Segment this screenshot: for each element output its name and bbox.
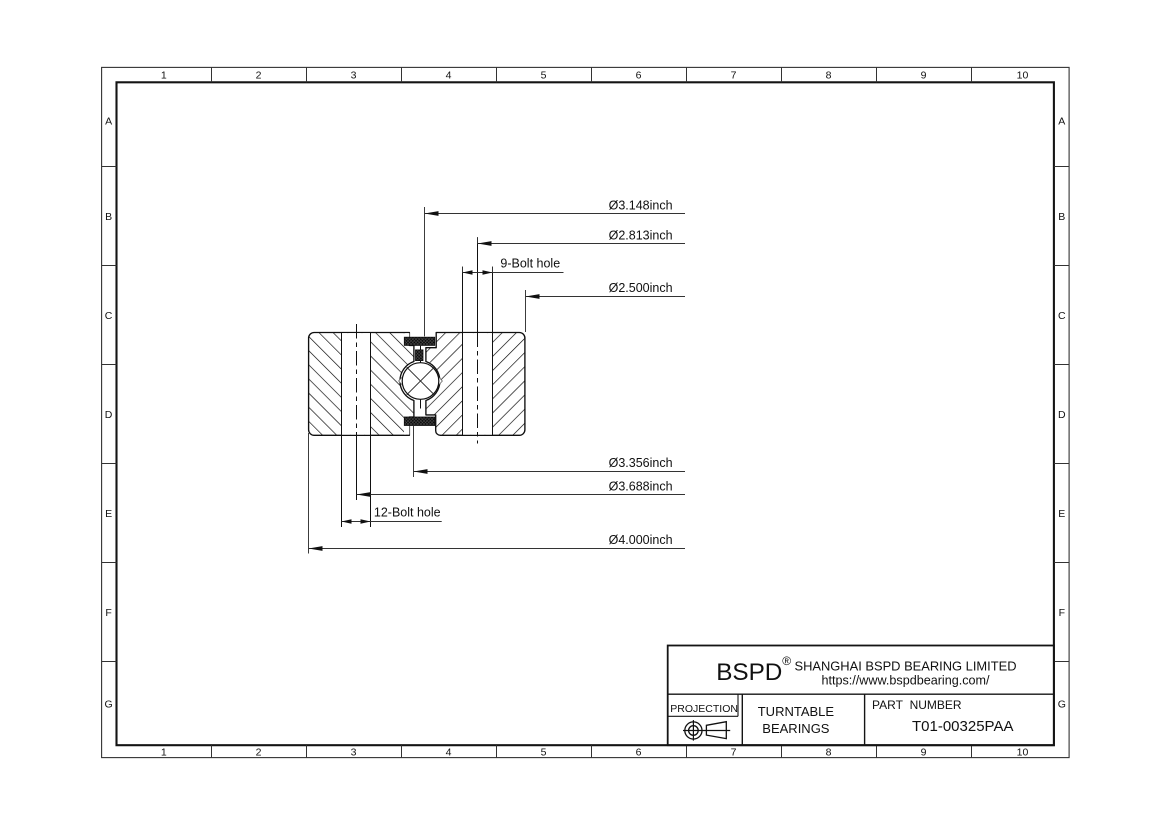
svg-text:5: 5 bbox=[541, 70, 547, 82]
svg-text:Ø3.688inch: Ø3.688inch bbox=[609, 479, 673, 493]
svg-text:12-Bolt hole: 12-Bolt hole bbox=[374, 506, 441, 520]
svg-text:PART NUMBER: PART NUMBER bbox=[872, 698, 962, 712]
svg-text:SHANGHAI BSPD BEARING LIMITED: SHANGHAI BSPD BEARING LIMITED bbox=[794, 658, 1016, 673]
svg-text:3: 3 bbox=[351, 70, 357, 82]
svg-text:7: 7 bbox=[731, 746, 737, 758]
svg-text:TURNTABLE: TURNTABLE bbox=[758, 704, 835, 719]
svg-text:B: B bbox=[1058, 211, 1065, 223]
svg-text:Ø3.148inch: Ø3.148inch bbox=[609, 198, 673, 212]
svg-text:6: 6 bbox=[636, 70, 642, 82]
svg-text:B: B bbox=[105, 211, 112, 223]
svg-text:4: 4 bbox=[446, 70, 452, 82]
svg-text:C: C bbox=[105, 310, 113, 322]
svg-text:1: 1 bbox=[161, 70, 167, 82]
svg-text:E: E bbox=[105, 508, 112, 520]
svg-text:6: 6 bbox=[636, 746, 642, 758]
svg-text:G: G bbox=[1058, 698, 1066, 710]
svg-text:3: 3 bbox=[351, 746, 357, 758]
svg-text:F: F bbox=[105, 607, 111, 619]
svg-text:8: 8 bbox=[826, 70, 832, 82]
svg-text:10: 10 bbox=[1017, 746, 1029, 758]
svg-text:E: E bbox=[1058, 508, 1065, 520]
svg-text:5: 5 bbox=[541, 746, 547, 758]
svg-text:Ø3.356inch: Ø3.356inch bbox=[609, 456, 673, 470]
svg-text:G: G bbox=[105, 698, 113, 710]
svg-text:D: D bbox=[1058, 409, 1066, 421]
svg-text:7: 7 bbox=[731, 70, 737, 82]
svg-text:2: 2 bbox=[256, 746, 262, 758]
svg-text:Ø4.000inch: Ø4.000inch bbox=[609, 533, 673, 547]
svg-text:https://www.bspdbearing.com/: https://www.bspdbearing.com/ bbox=[822, 674, 990, 688]
svg-text:10: 10 bbox=[1017, 70, 1029, 82]
svg-text:T01-00325PAA: T01-00325PAA bbox=[912, 718, 1013, 735]
svg-text:9: 9 bbox=[921, 746, 927, 758]
svg-text:D: D bbox=[105, 409, 113, 421]
svg-text:Ø2.813inch: Ø2.813inch bbox=[609, 228, 673, 242]
svg-text:®: ® bbox=[782, 654, 791, 668]
svg-text:8: 8 bbox=[826, 746, 832, 758]
svg-text:1: 1 bbox=[161, 746, 167, 758]
svg-text:4: 4 bbox=[446, 746, 452, 758]
svg-text:2: 2 bbox=[256, 70, 262, 82]
svg-text:A: A bbox=[1058, 115, 1065, 127]
svg-text:BEARINGS: BEARINGS bbox=[762, 721, 830, 736]
svg-text:BSPD: BSPD bbox=[716, 659, 782, 686]
svg-text:9: 9 bbox=[921, 70, 927, 82]
svg-text:A: A bbox=[105, 115, 112, 127]
svg-text:PROJECTION: PROJECTION bbox=[670, 703, 738, 715]
svg-text:F: F bbox=[1059, 607, 1065, 619]
svg-text:9-Bolt hole: 9-Bolt hole bbox=[500, 256, 560, 270]
svg-text:Ø2.500inch: Ø2.500inch bbox=[609, 281, 673, 295]
svg-text:C: C bbox=[1058, 310, 1066, 322]
